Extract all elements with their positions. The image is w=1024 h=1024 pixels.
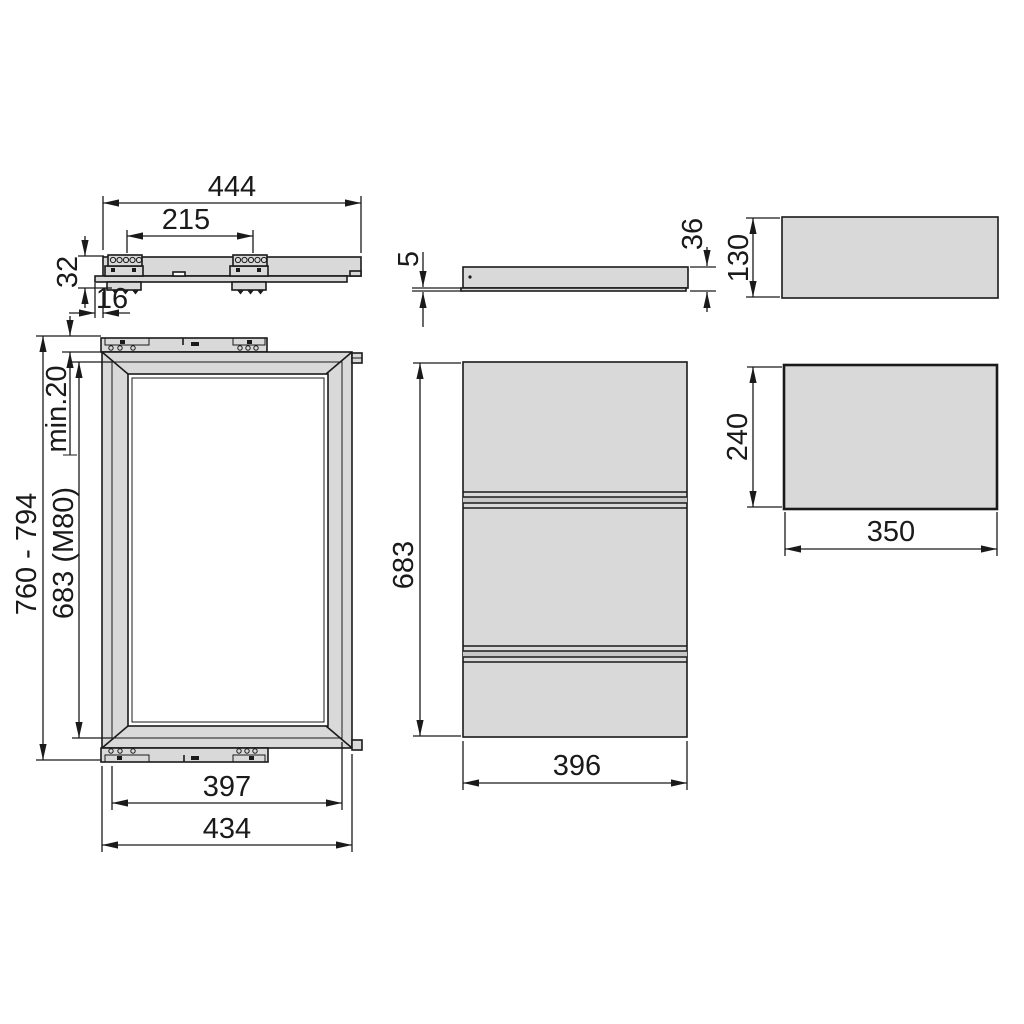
technical-drawing-page: 444 215 32 16: [0, 0, 1024, 1024]
dim-slab-depth: 130: [723, 218, 780, 297]
panel-side-dot: [468, 275, 471, 278]
frame-front-view: 760 - 794 min.20 683 (M80) 397: [11, 316, 362, 852]
dim-label-130: 130: [723, 234, 755, 282]
dim-label-min20: min.20: [41, 365, 73, 452]
dimension-drawing: 444 215 32 16: [0, 0, 1024, 1024]
dim-label-215: 215: [162, 204, 210, 236]
frame-corner-tab-bottom: [352, 740, 362, 750]
dim-label-683: 683: [388, 541, 420, 589]
dim-label-350: 350: [867, 516, 915, 548]
dim-label-240: 240: [722, 413, 754, 461]
top-slab-view: 130: [723, 217, 998, 298]
rail-notch: [173, 272, 185, 276]
rail-side-view: 444 215 32 16: [52, 171, 361, 318]
panel-side-view: 5 36: [393, 218, 716, 327]
side-slab-view: 240 350: [722, 365, 997, 556]
dim-panel-height: 683: [388, 363, 461, 736]
rail-end-step: [350, 271, 361, 276]
dim-label-760-794: 760 - 794: [11, 493, 43, 616]
frame-bottom-rail: [101, 748, 268, 762]
panel-front-body: [463, 362, 687, 737]
top-slab-body: [782, 217, 998, 298]
dim-label-16: 16: [96, 283, 128, 315]
rail-runner-strip: [95, 276, 347, 282]
dim-bracket-spacing: 215: [127, 204, 253, 253]
dim-edge-thickness: 5: [393, 251, 461, 327]
frame-top-rail: [101, 338, 267, 352]
panel-side-body: [463, 267, 688, 288]
dim-label-444: 444: [208, 171, 256, 203]
dim-slab-height: 240: [722, 367, 782, 507]
dim-rail-total-length: 444: [103, 171, 361, 253]
dim-slab-width: 350: [785, 512, 997, 556]
dim-panel-width: 396: [463, 741, 687, 790]
dim-label-683-m80: 683 (M80): [48, 487, 80, 619]
dim-label-397: 397: [203, 771, 251, 803]
dim-panel-thickness: 36: [677, 218, 716, 312]
panel-side-edge-strip: [461, 288, 686, 291]
rail-bracket-right: [230, 255, 268, 295]
dim-label-434: 434: [203, 813, 251, 845]
frame-profile: [102, 352, 352, 748]
dim-label-32: 32: [52, 256, 84, 288]
panel-front-view: 683 396: [388, 362, 687, 790]
dim-top-clearance: min.20: [41, 316, 102, 455]
dim-label-396: 396: [553, 750, 601, 782]
dim-label-5: 5: [393, 251, 425, 267]
dim-label-36: 36: [677, 218, 709, 250]
side-slab-body: [784, 365, 997, 509]
